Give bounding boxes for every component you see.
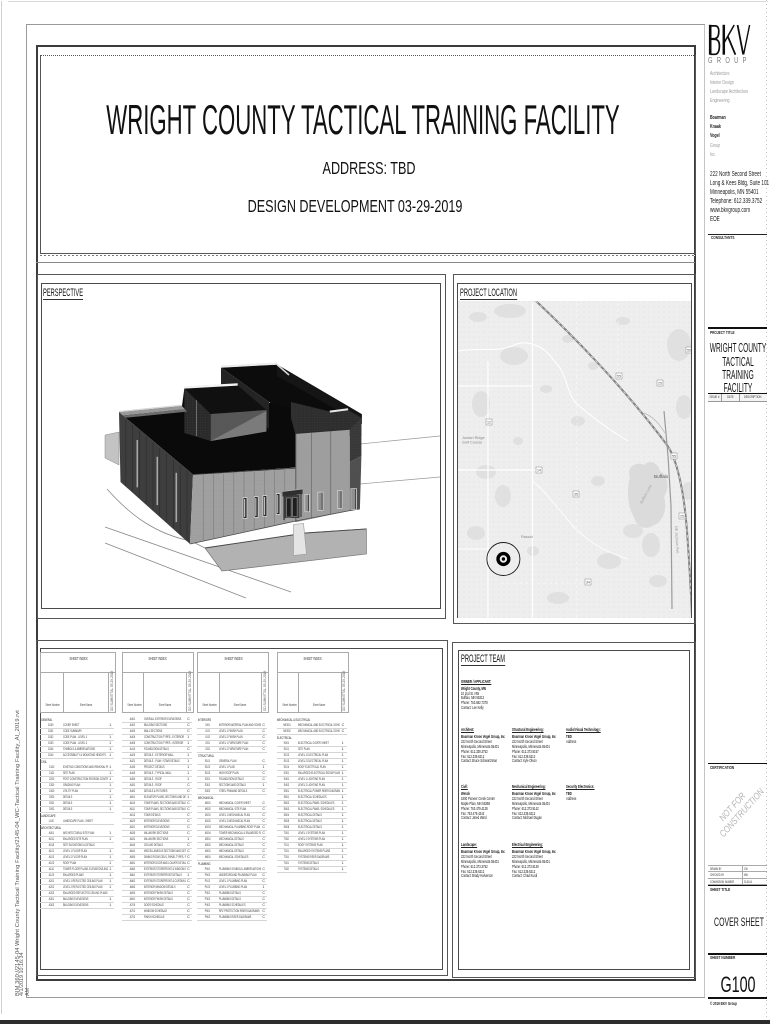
svg-text:Rascal: Rascal [521,535,533,539]
svg-text:14: 14 [537,468,541,472]
svg-text:25: 25 [680,514,684,518]
svg-text:Buffalo: Buffalo [654,474,669,479]
svg-text:Jordan Ridge: Jordan Ridge [462,436,485,440]
svg-text:34: 34 [586,580,590,584]
svg-text:35: 35 [574,492,578,496]
svg-text:25: 25 [658,381,662,385]
svg-text:12: 12 [487,420,491,424]
svg-text:55: 55 [687,348,691,352]
svg-text:Golf Course: Golf Course [462,440,482,444]
svg-text:55: 55 [672,454,676,458]
svg-text:55: 55 [617,374,621,378]
